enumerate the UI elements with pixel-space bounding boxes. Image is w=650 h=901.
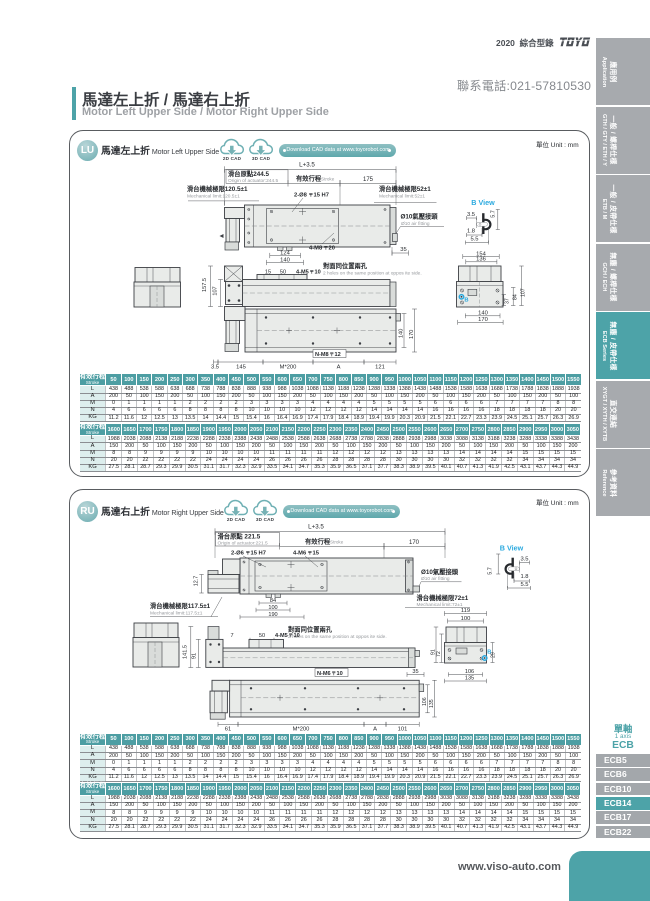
svg-text:5.5: 5.5 [520, 582, 528, 588]
svg-text:140: 140 [280, 257, 290, 263]
svg-text:〒: 〒 [332, 671, 337, 676]
svg-text:61: 61 [225, 726, 231, 732]
svg-text:滑台原點244.5: 滑台原點244.5 [228, 169, 269, 178]
svg-text:107: 107 [213, 286, 219, 295]
svg-text:2-Ø8: 2-Ø8 [294, 193, 308, 199]
svg-text:35: 35 [400, 247, 406, 253]
svg-text:157.5: 157.5 [202, 278, 208, 292]
svg-text:119: 119 [461, 608, 470, 614]
svg-text:2-Ø6: 2-Ø6 [231, 551, 245, 557]
svg-text:7: 7 [230, 633, 233, 639]
svg-text:106: 106 [422, 697, 428, 706]
svg-text:29: 29 [491, 652, 497, 658]
svg-text:有效行程: 有效行程 [305, 537, 331, 546]
svg-text:84: 84 [513, 294, 519, 300]
svg-text:15: 15 [313, 551, 320, 557]
svg-text:2 holes on the same position a: 2 holes on the same position at oppos it… [323, 271, 422, 277]
svg-text:5.5: 5.5 [470, 237, 478, 243]
svg-text:170: 170 [409, 330, 415, 339]
svg-text:1.8: 1.8 [520, 574, 528, 580]
svg-text:4-M8: 4-M8 [309, 246, 323, 252]
svg-text:滑台機械極限72±1: 滑台機械極限72±1 [417, 593, 469, 602]
svg-text:4-M5: 4-M5 [275, 633, 288, 639]
svg-text:B: B [487, 650, 491, 656]
svg-text:Mechanical limit:117.5±1: Mechanical limit:117.5±1 [150, 611, 203, 617]
svg-text:〒: 〒 [289, 633, 294, 638]
svg-text:2 holes on the same position a: 2 holes on the same position at oppos it… [288, 634, 387, 640]
svg-text:〒: 〒 [330, 352, 335, 357]
svg-text:L+3.5: L+3.5 [299, 162, 315, 169]
svg-text:140: 140 [399, 329, 405, 338]
svg-text:15 H7: 15 H7 [314, 193, 329, 199]
svg-text:5.7: 5.7 [488, 567, 494, 575]
svg-text:170: 170 [478, 317, 488, 323]
svg-text:B View: B View [500, 544, 524, 553]
svg-text:175: 175 [363, 177, 374, 183]
svg-text:滑台機械極限120.5±1: 滑台機械極限120.5±1 [187, 184, 248, 193]
svg-text:滑台機械極限52±1: 滑台機械極限52±1 [379, 184, 431, 193]
svg-text:有效行程: 有效行程 [296, 174, 322, 183]
svg-text:3.5: 3.5 [520, 557, 528, 563]
svg-text:136: 136 [476, 257, 486, 263]
svg-text:107: 107 [521, 288, 527, 297]
svg-text:Ø10 air fitting: Ø10 air fitting [421, 576, 450, 582]
svg-text:滑台機械極限117.5±1: 滑台機械極限117.5±1 [150, 601, 211, 610]
svg-text:A: A [373, 726, 377, 732]
svg-text:140: 140 [478, 310, 488, 316]
svg-text:N-M6: N-M6 [317, 671, 331, 677]
svg-text:對面同位置兩孔: 對面同位置兩孔 [323, 261, 368, 270]
svg-text:M*200: M*200 [280, 364, 297, 370]
svg-text:Stroke: Stroke [321, 177, 335, 182]
svg-text:91: 91 [192, 653, 198, 659]
svg-text:141.5: 141.5 [183, 645, 189, 659]
svg-text:Origin of actuator:244.5: Origin of actuator:244.5 [228, 178, 278, 184]
svg-text:Mechanical limit:72±1: Mechanical limit:72±1 [417, 602, 463, 608]
svg-text:35: 35 [412, 669, 418, 675]
svg-text:84: 84 [270, 598, 276, 604]
svg-text:145: 145 [236, 364, 246, 370]
svg-text:3.5: 3.5 [467, 212, 475, 218]
svg-text:10: 10 [294, 633, 300, 639]
svg-text:5.7: 5.7 [491, 210, 497, 218]
svg-text:N-M8: N-M8 [315, 352, 329, 358]
svg-text:124: 124 [280, 250, 290, 256]
svg-text:3.5: 3.5 [211, 364, 219, 370]
svg-text:Mechanical limit:52±1: Mechanical limit:52±1 [379, 194, 425, 200]
svg-text:15 H7: 15 H7 [251, 551, 266, 557]
svg-text:100: 100 [461, 616, 471, 622]
svg-text:20: 20 [329, 246, 335, 252]
svg-text:Ø10 air fitting: Ø10 air fitting [401, 221, 430, 227]
svg-text:滑台原點 221.5: 滑台原點 221.5 [218, 532, 261, 541]
svg-text:B View: B View [471, 198, 495, 207]
svg-text:100: 100 [268, 605, 277, 611]
svg-text:72: 72 [436, 651, 442, 657]
svg-text:121: 121 [375, 364, 385, 370]
svg-text:135: 135 [429, 699, 435, 708]
svg-text:〒: 〒 [310, 270, 315, 275]
svg-text:170: 170 [409, 540, 420, 546]
svg-text:Ø10氣壓接頭: Ø10氣壓接頭 [421, 567, 459, 576]
svg-text:Mechanical limit:120.5±1: Mechanical limit:120.5±1 [187, 194, 240, 200]
svg-text:50: 50 [259, 633, 265, 639]
svg-text:4-M6: 4-M6 [293, 551, 307, 557]
svg-text:101: 101 [398, 726, 408, 732]
svg-text:135: 135 [465, 676, 474, 682]
svg-text:Ø10氣壓接頭: Ø10氣壓接頭 [401, 212, 439, 221]
svg-text:L+3.5: L+3.5 [308, 524, 324, 531]
svg-text:106: 106 [465, 669, 474, 675]
svg-text:1.8: 1.8 [467, 229, 475, 235]
svg-text:A: A [337, 364, 341, 370]
svg-text:M*200: M*200 [293, 726, 310, 732]
svg-text:10: 10 [337, 671, 343, 677]
svg-text:37: 37 [505, 298, 511, 304]
svg-text:12: 12 [335, 352, 341, 358]
svg-text:Stroke: Stroke [330, 540, 344, 545]
svg-text:Origin of actuator:221.5: Origin of actuator:221.5 [218, 541, 268, 547]
svg-text:190: 190 [268, 612, 277, 618]
svg-text:10: 10 [315, 270, 321, 276]
svg-text:12.7: 12.7 [194, 576, 200, 587]
svg-text:B: B [464, 298, 468, 304]
